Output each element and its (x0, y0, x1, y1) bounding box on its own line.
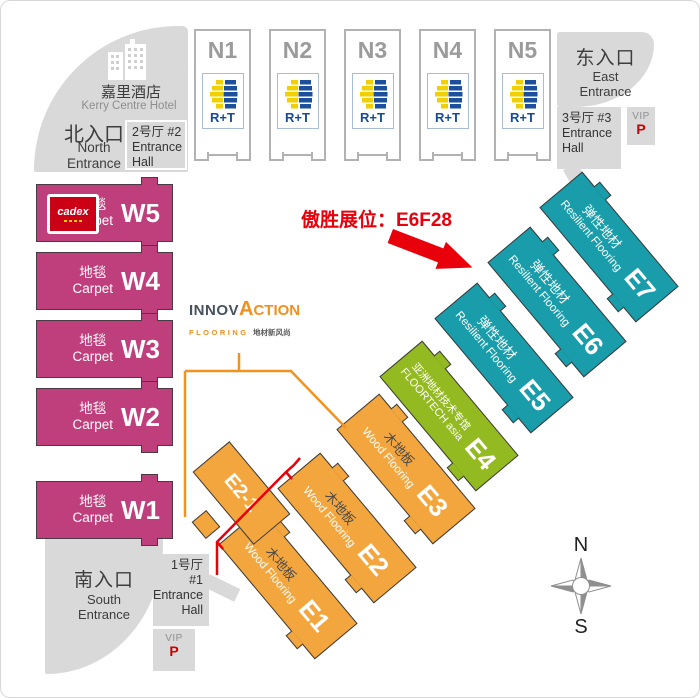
south-entrance-area: 南入口 South Entrance (45, 531, 163, 674)
innovaction-flooring-logo: INNOVACTION FLOORING 地材新风尚 (189, 298, 309, 340)
hall-w1-label: 地毯 Carpet (72, 494, 113, 525)
rt-stripes-icon (433, 79, 463, 109)
kerry-hotel-name-zh: 嘉里酒店 (76, 81, 186, 102)
hall-w4-label: 地毯 Carpet (72, 265, 113, 296)
highlighted-booth-annotation: 傲胜展位：E6F28 (301, 205, 452, 232)
entrance-hall-3: 3号厅 #3 Entrance Hall (557, 107, 621, 169)
compass-star-icon (549, 557, 613, 615)
entrance-hall-2: 2号厅 #2 Entrance Hall (125, 120, 187, 170)
rt-stripes-icon (283, 79, 313, 109)
rt-stripes-icon (208, 79, 238, 109)
parking-icon: P (153, 644, 195, 658)
kerry-hotel-name-en: Kerry Centre Hotel (54, 100, 204, 112)
cadex-logo: cadex (47, 194, 99, 234)
rt-stripes-icon (508, 79, 538, 109)
hall-w4: 地毯 Carpet W4 (36, 252, 173, 310)
rt-stripes-icon (358, 79, 388, 109)
hall-w2-label: 地毯 Carpet (72, 401, 113, 432)
parking-icon: P (627, 122, 655, 136)
compass-south-label: S (549, 617, 613, 637)
hall-w3: 地毯 Carpet W3 (36, 320, 173, 378)
hall-n2: N2 R+T (269, 29, 326, 156)
entrance-hall-1: 1号厅 #1 Entrance Hall (153, 554, 209, 626)
compass-rose: N S (549, 535, 613, 637)
east-entrance-label-zh: 东入口 (557, 43, 654, 70)
cadex-dots (64, 220, 82, 222)
rt-logo: R+T (202, 73, 244, 129)
hall-w1: 地毯 Carpet W1 (36, 481, 173, 539)
south-entrance-label-en: South Entrance (55, 593, 153, 623)
hall-n3: N3 R+T (344, 29, 401, 156)
hall-w2: 地毯 Carpet W2 (36, 388, 173, 446)
hall-n5: N5 R+T (494, 29, 551, 156)
north-entrance-label-en: North Entrance (52, 140, 136, 172)
hall-n1: N1 R+T (194, 29, 251, 156)
east-entrance-label-en: East Entrance (557, 70, 654, 100)
hall-w3-label: 地毯 Carpet (72, 333, 113, 364)
hall-e2-1-tab (192, 510, 221, 539)
rt-logo: R+T (352, 73, 394, 129)
rt-logo: R+T (502, 73, 544, 129)
vip-parking-east: VIP P (627, 107, 655, 145)
rt-logo: R+T (427, 73, 469, 129)
vip-parking-south: VIP P (153, 629, 195, 671)
rt-logo: R+T (277, 73, 319, 129)
south-entrance-label-zh: 南入口 (55, 565, 153, 592)
hotel-icon (104, 38, 154, 80)
hall-n4: N4 R+T (419, 29, 476, 156)
hall-w5: cadex 地毯 Carpet W5 (36, 184, 173, 242)
compass-north-label: N (549, 535, 613, 555)
hall1-connector (204, 574, 241, 601)
exhibition-floor-plan: 嘉里酒店 Kerry Centre Hotel 北入口 North Entran… (0, 0, 700, 698)
east-entrance-area: 东入口 East Entrance (557, 32, 654, 107)
